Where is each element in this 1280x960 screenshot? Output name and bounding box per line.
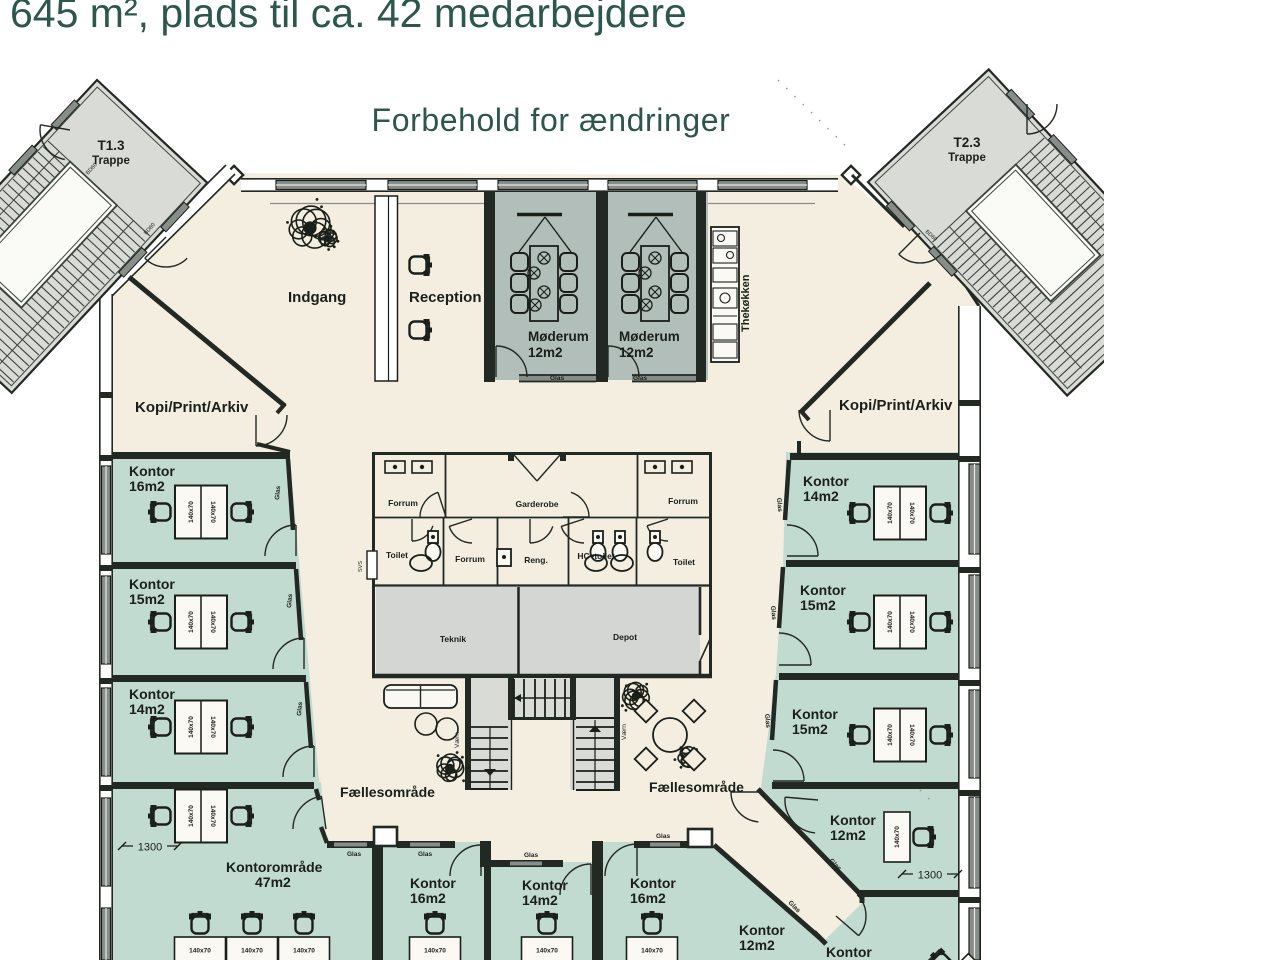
svg-text:140x70: 140x70 — [894, 826, 901, 848]
svg-text:140x70: 140x70 — [887, 611, 894, 633]
svg-text:Kontor: Kontor — [129, 576, 175, 592]
svg-text:15m2: 15m2 — [129, 591, 165, 607]
svg-text:140x70: 140x70 — [209, 611, 216, 633]
svg-text:140x70: 140x70 — [241, 948, 263, 955]
svg-text:Trappe: Trappe — [92, 155, 130, 167]
svg-text:140x70: 140x70 — [209, 716, 216, 738]
svg-text:Kontor: Kontor — [630, 875, 676, 891]
svg-text:12m2: 12m2 — [619, 345, 654, 360]
svg-text:140x70: 140x70 — [188, 716, 195, 738]
svg-text:Kontor: Kontor — [410, 875, 456, 891]
svg-text:Glas: Glas — [769, 606, 777, 621]
svg-text:Forrum: Forrum — [668, 496, 698, 506]
svg-text:16m2: 16m2 — [630, 890, 666, 906]
svg-text:12m2: 12m2 — [739, 937, 775, 953]
svg-text:140x70: 140x70 — [887, 724, 894, 746]
svg-text:Kontor: Kontor — [522, 877, 568, 893]
svg-text:Møderum: Møderum — [528, 329, 589, 344]
svg-text:Glas: Glas — [550, 375, 564, 382]
svg-text:14m2: 14m2 — [522, 892, 558, 908]
svg-text:Glas: Glas — [775, 498, 783, 513]
svg-text:14m2: 14m2 — [129, 701, 165, 717]
svg-text:Glas: Glas — [296, 701, 304, 716]
svg-text:Fællesområde: Fællesområde — [649, 779, 744, 795]
svg-text:Kontor: Kontor — [826, 944, 872, 960]
svg-text:Glas: Glas — [418, 851, 432, 858]
svg-text:Garderobe: Garderobe — [516, 499, 559, 509]
svg-text:1300: 1300 — [138, 842, 162, 854]
svg-text:Fællesområde: Fællesområde — [340, 784, 435, 800]
svg-text:Glas: Glas — [286, 593, 294, 608]
svg-text:Glas: Glas — [524, 852, 538, 859]
svg-text:T2.3: T2.3 — [953, 135, 981, 150]
svg-text:Reception: Reception — [409, 289, 482, 306]
svg-text:140x70: 140x70 — [188, 501, 195, 523]
svg-text:HC–toilet: HC–toilet — [577, 551, 614, 561]
svg-text:SVS: SVS — [358, 561, 364, 572]
svg-text:Glas: Glas — [763, 714, 771, 729]
svg-text:140x70: 140x70 — [908, 611, 915, 633]
svg-text:12m2: 12m2 — [528, 345, 563, 360]
svg-text:140x70: 140x70 — [209, 805, 216, 827]
svg-text:Glas: Glas — [274, 485, 282, 500]
svg-text:Teknik: Teknik — [440, 634, 467, 644]
svg-text:140x70: 140x70 — [908, 502, 915, 524]
svg-text:Kontor: Kontor — [129, 686, 175, 702]
svg-text:140x70: 140x70 — [209, 501, 216, 523]
svg-text:Glas: Glas — [656, 833, 670, 840]
svg-text:Kontor: Kontor — [803, 473, 849, 489]
svg-text:Depot: Depot — [613, 632, 637, 642]
svg-text:140x70: 140x70 — [908, 724, 915, 746]
svg-text:16m2: 16m2 — [129, 478, 165, 494]
svg-text:Kontor: Kontor — [830, 812, 876, 828]
svg-text:140x70: 140x70 — [188, 611, 195, 633]
svg-text:645 m², plads til ca. 42 medar: 645 m², plads til ca. 42 medarbejdere — [10, 0, 687, 36]
svg-text:Trappe: Trappe — [948, 152, 986, 164]
svg-text:Kopi/Print/Arkiv: Kopi/Print/Arkiv — [135, 399, 249, 416]
svg-text:15m2: 15m2 — [800, 597, 836, 613]
svg-text:16m2: 16m2 — [410, 890, 446, 906]
svg-text:47m2: 47m2 — [255, 874, 291, 890]
svg-text:15m2: 15m2 — [792, 721, 828, 737]
svg-text:Kopi/Print/Arkiv: Kopi/Print/Arkiv — [839, 397, 953, 414]
svg-text:Forbehold for ændringer: Forbehold for ændringer — [372, 102, 731, 138]
svg-text:140x70: 140x70 — [188, 805, 195, 827]
svg-text:Kontor: Kontor — [739, 922, 785, 938]
svg-text:Thekøkken: Thekøkken — [740, 274, 752, 332]
svg-text:Kontor: Kontor — [800, 582, 846, 598]
svg-text:140x70: 140x70 — [536, 948, 558, 955]
svg-text:1300: 1300 — [918, 870, 942, 882]
svg-text:140x70: 140x70 — [189, 948, 211, 955]
svg-text:Kontor: Kontor — [792, 706, 838, 722]
svg-text:Møderum: Møderum — [619, 329, 680, 344]
svg-text:12m2: 12m2 — [830, 827, 866, 843]
svg-text:14m2: 14m2 — [803, 488, 839, 504]
svg-text:Værn: Værn — [621, 724, 628, 740]
svg-text:Reng.: Reng. — [524, 555, 548, 565]
svg-text:Indgang: Indgang — [288, 289, 346, 306]
svg-text:Glas: Glas — [633, 375, 647, 382]
svg-text:T1.3: T1.3 — [97, 138, 125, 153]
svg-text:Forrum: Forrum — [455, 554, 485, 564]
svg-text:Forrum: Forrum — [388, 498, 418, 508]
svg-text:140x70: 140x70 — [641, 948, 663, 955]
svg-text:Kontorområde: Kontorområde — [226, 859, 323, 875]
svg-text:140x70: 140x70 — [424, 948, 446, 955]
svg-text:140x70: 140x70 — [887, 502, 894, 524]
svg-text:Toilet: Toilet — [386, 550, 408, 560]
svg-text:140x70: 140x70 — [293, 948, 315, 955]
svg-text:Toilet: Toilet — [673, 557, 695, 567]
svg-text:Glas: Glas — [347, 851, 361, 858]
svg-text:Kontor: Kontor — [129, 463, 175, 479]
